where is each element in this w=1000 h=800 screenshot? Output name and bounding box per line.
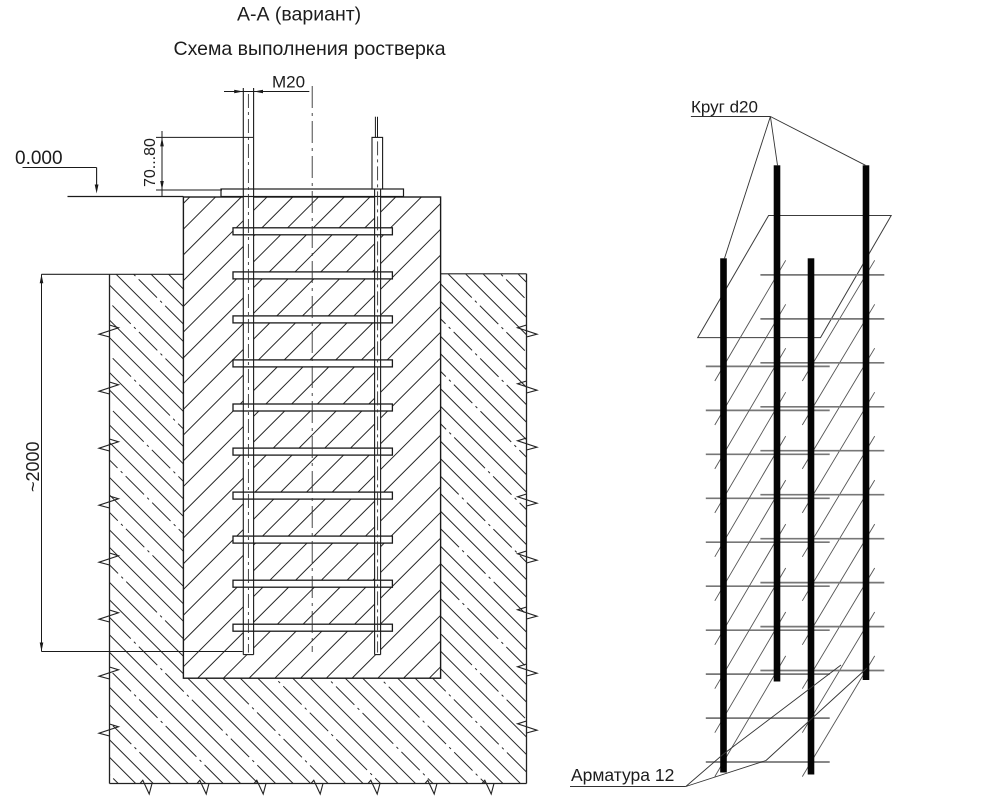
svg-text:А-А (вариант): А-А (вариант) [237,4,361,26]
svg-text:70...80: 70...80 [142,138,159,187]
svg-text:М20: М20 [272,73,305,92]
svg-text:Круг d20: Круг d20 [691,98,758,117]
svg-text:Схема выполнения ростверка: Схема выполнения ростверка [174,38,446,60]
svg-text:0.000: 0.000 [15,148,63,169]
svg-text:Арматура 12: Арматура 12 [571,765,674,785]
svg-text:~2000: ~2000 [23,441,43,492]
